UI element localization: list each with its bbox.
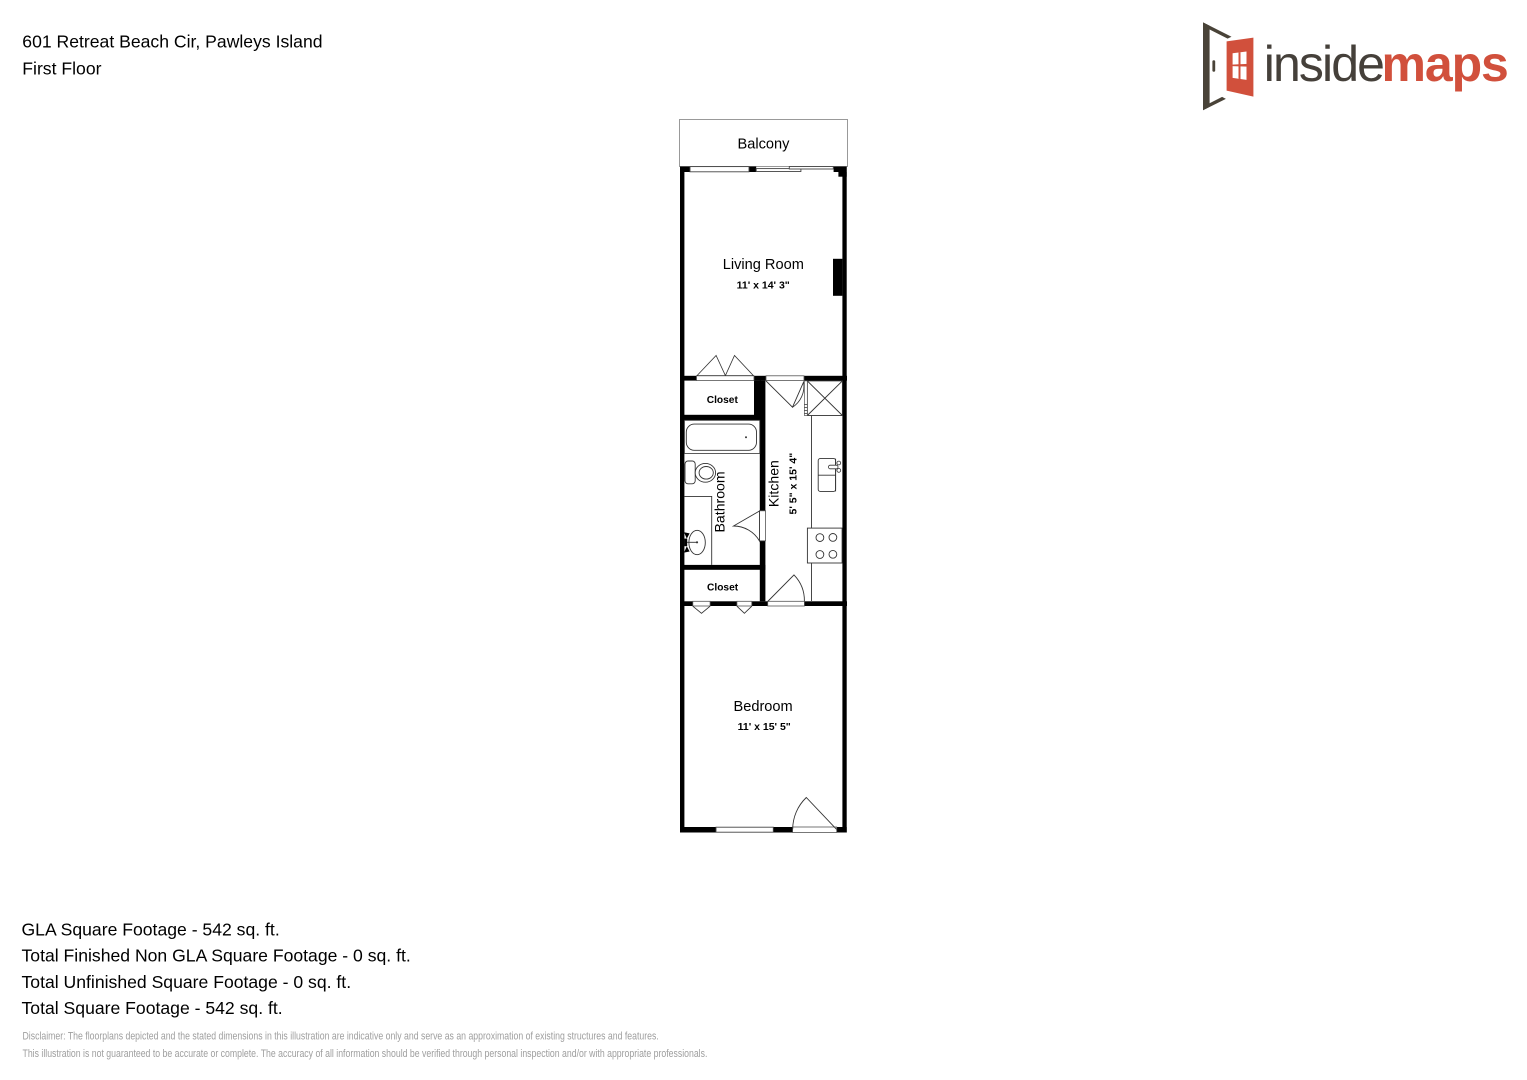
svg-text:Closet: Closet [707, 583, 739, 594]
svg-text:5' 5" x 15' 4": 5' 5" x 15' 4" [788, 453, 800, 515]
svg-text:Disclaimer: The floorplans dep: Disclaimer: The floorplans depicted and … [23, 1030, 659, 1042]
svg-text:11' x 15' 5": 11' x 15' 5" [738, 721, 791, 733]
svg-text:Total Unfinished Square Footag: Total Unfinished Square Footage - 0 sq. … [22, 972, 352, 992]
svg-text:Closet: Closet [707, 395, 739, 406]
svg-text:This illustration is not guara: This illustration is not guaranteed to b… [23, 1048, 708, 1060]
svg-text:inside: inside [1264, 36, 1383, 92]
svg-text:Bedroom: Bedroom [733, 699, 792, 715]
svg-text:Living Room: Living Room [723, 257, 804, 273]
svg-text:Bathroom: Bathroom [711, 471, 727, 532]
svg-text:11' x 14' 3": 11' x 14' 3" [737, 279, 790, 291]
svg-text:601 Retreat Beach Cir, Pawleys: 601 Retreat Beach Cir, Pawleys Island [22, 32, 322, 52]
svg-text:GLA Square Footage - 542 sq. f: GLA Square Footage - 542 sq. ft. [22, 920, 280, 940]
svg-text:maps: maps [1382, 36, 1508, 92]
svg-text:Total Square Footage - 542 sq.: Total Square Footage - 542 sq. ft. [22, 998, 283, 1018]
svg-text:Kitchen: Kitchen [766, 460, 782, 507]
svg-text:Balcony: Balcony [738, 136, 791, 152]
svg-text:Total Finished Non GLA Square: Total Finished Non GLA Square Footage - … [22, 946, 411, 966]
svg-text:First Floor: First Floor [22, 59, 101, 79]
